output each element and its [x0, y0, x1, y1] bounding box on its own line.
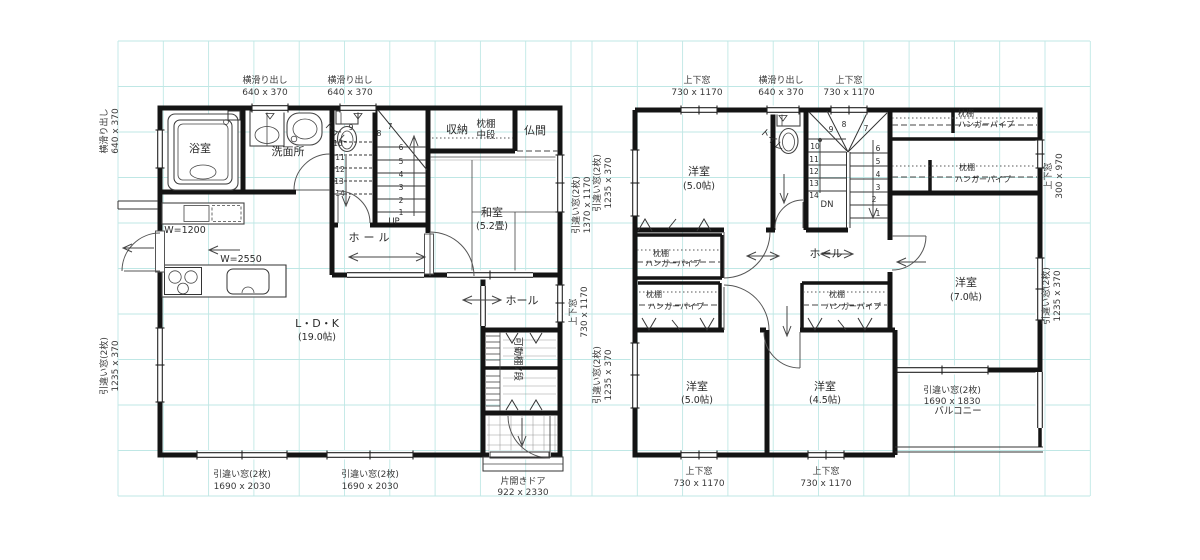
floor1-back-step: [118, 201, 158, 209]
stair-num: 9: [349, 123, 354, 132]
winlabel-bottom-bed-sw-size: 730 x 1170: [673, 479, 724, 489]
winlabel-bottom-left-type: 引違い窓(2枚): [213, 468, 271, 480]
counter-kitchen-label: W=2550: [220, 254, 262, 265]
stair-num: 12: [809, 167, 819, 176]
winlabel-bottom-bed-s-type: 上下窓: [812, 465, 839, 477]
floor1-washroom-fixtures: [250, 111, 322, 146]
room-label-washitsu: 和室: [481, 205, 503, 219]
winlabel-bottom-left-size: 1690 x 2030: [214, 482, 271, 492]
winlabel-right-closet-size: 300 x 970: [1055, 153, 1065, 199]
room-label-bed-s: 洋室: [814, 379, 836, 393]
winlabel-top-stairs-size: 730 x 1170: [823, 88, 874, 98]
floorplan-drawing: 1 2 3 4 5 6 7 8 9 10 11 12 13 14 UP: [0, 0, 1200, 560]
winlabel-bottom-bed-s-size: 730 x 1170: [800, 479, 851, 489]
stair-num: 8: [842, 120, 847, 129]
winlabel-right-bed-e-size: 1235 x 370: [1053, 270, 1063, 321]
window-left-ldk: [156, 328, 165, 402]
winlabel-left-bath-type: 横滑り出し: [98, 108, 110, 153]
closet-pipe-label: ハンガーパイプ: [645, 258, 701, 268]
window-balcony: [897, 366, 988, 375]
room-size-bed-sw: (5.0帖): [681, 394, 713, 406]
shoe-shelf-label: 可動棚7段: [512, 337, 524, 382]
storage-shelf-line1: 枕棚: [476, 118, 495, 130]
stair-num: 11: [335, 153, 345, 162]
closet-shelf-label: 枕棚: [959, 162, 975, 172]
winlabel-top-stairs-type: 上下窓: [835, 74, 862, 86]
closet-shelf-label: 枕棚: [958, 108, 974, 118]
room-label-bed-e: 洋室: [955, 275, 977, 289]
winlabel-left-ldk-size: 1235 x 370: [111, 340, 121, 391]
stair-num: 8: [377, 129, 382, 138]
room-label-bed-sw: 洋室: [686, 379, 708, 393]
stair-num: 5: [876, 157, 881, 166]
closet-chevrons: [506, 333, 542, 410]
winlabel-balcony-type: 引違い窓(2枚): [923, 384, 981, 396]
closet-shelf-label: 枕棚: [646, 289, 662, 299]
room-size-bed-nw: (5.0帖): [683, 180, 715, 192]
room-label-butsuma: 仏間: [524, 124, 546, 137]
closet-pipe-label: ハンガーパイプ: [955, 174, 1011, 184]
floor2-stairs: 9 10 11 12 13 14 8 7 6 5 4 3 2 1 DN: [808, 111, 888, 228]
winlabel-right-hall-type: 上下窓: [567, 298, 579, 325]
closet-pipe-label: ハンガーパイプ: [958, 119, 1014, 129]
stair-num: 2: [872, 195, 877, 204]
closet-shelf-label: 枕棚: [829, 289, 845, 299]
winlabel-bottom-right-size: 1690 x 2030: [342, 482, 399, 492]
winlabel-right-hall-size: 730 x 1170: [580, 286, 590, 337]
room-label-hall-upper: ホール: [349, 231, 394, 244]
winlabel-top-wash-type: 横滑り出し: [242, 74, 287, 86]
closet-shelf-label: 枕棚: [653, 248, 669, 258]
entrance-door-size: 922 x 2330: [497, 488, 548, 498]
stair-num: 13: [334, 177, 344, 186]
window-top-stairs: [831, 106, 867, 115]
stair-num: 1: [399, 208, 404, 217]
window-top-bed-nw: [681, 106, 717, 115]
stair-num: 10: [810, 142, 820, 151]
stair-num: 11: [809, 155, 819, 164]
stair-num: 6: [876, 144, 881, 153]
closet-pipe-label: ハンガーパイプ: [825, 301, 881, 311]
stair-num: 1: [876, 209, 881, 218]
window-bottom-ldk-right: [327, 451, 413, 460]
window-left-bed-nw: [631, 150, 640, 216]
room-size-bed-s: (4.5帖): [809, 394, 841, 406]
stair-num: 13: [809, 179, 819, 188]
winlabel-left-bed-sw-type: 引違い窓(2枚): [591, 346, 603, 404]
stair-num: 14: [809, 191, 819, 200]
stair-num: 3: [399, 183, 404, 192]
room-label-storage: 収納: [446, 123, 468, 136]
winlabel-top-toilet2-size: 640 x 370: [758, 88, 804, 98]
window-left-bath: [156, 130, 165, 168]
winlabel-top-bed-nw-size: 730 x 1170: [671, 88, 722, 98]
floor1-plan: 1 2 3 4 5 6 7 8 9 10 11 12 13 14 UP: [98, 74, 593, 498]
window-bottom-bed-sw: [681, 451, 717, 460]
window-bottom-bed-s: [808, 451, 844, 460]
window-right-washitsu: [556, 155, 565, 212]
winlabel-right-bed-e-type: 引違い窓(2枚): [1040, 267, 1052, 325]
winlabel-right-closet-type: 上下窓: [1042, 162, 1054, 189]
floorplan-canvas: 1 2 3 4 5 6 7 8 9 10 11 12 13 14 UP: [0, 0, 1200, 560]
window-left-bed-sw: [631, 343, 640, 408]
room-label-hall2: ホール: [810, 247, 843, 260]
stair-num: 2: [399, 196, 404, 205]
winlabel-balcony-size: 1690 x 1830: [924, 397, 981, 407]
closet-pipe-label: ハンガーパイプ: [648, 301, 704, 311]
winlabel-top-toilet-type: 横滑り出し: [327, 74, 372, 86]
storage-shelf-line2: 中段: [476, 129, 496, 141]
winlabel-left-ldk-type: 引違い窓(2枚): [98, 337, 110, 395]
room-size-washitsu: (5.2畳): [476, 221, 508, 232]
stair-num: 4: [399, 170, 404, 179]
stair-num: 3: [876, 183, 881, 192]
stair-num: 6: [399, 143, 404, 152]
room-size-ldk: (19.0帖): [298, 331, 336, 343]
winlabel-bottom-right-type: 引違い窓(2枚): [341, 468, 399, 480]
counter-sink-label: W=1200: [164, 225, 206, 236]
winlabel-bottom-bed-sw-type: 上下窓: [685, 465, 712, 477]
stairs-dn-label: DN: [821, 200, 834, 210]
stair-num: 7: [864, 124, 869, 133]
room-label-bath: 浴室: [189, 141, 211, 155]
stair-num: 5: [399, 157, 404, 166]
room-label-wash: 洗面所: [272, 145, 305, 158]
room-label-ldk: L・D・K: [295, 317, 340, 330]
room-size-bed-e: (7.0帖): [950, 291, 982, 303]
floor2-plan: 9 10 11 12 13 14 8 7 6 5 4 3 2 1 DN: [591, 74, 1065, 489]
stair-num: 14: [335, 189, 345, 198]
winlabel-top-toilet-size: 640 x 370: [327, 88, 373, 98]
winlabel-left-bed-nw-size: 1235 x 370: [604, 157, 614, 208]
stair-num: 12: [335, 165, 345, 174]
window-bottom-ldk-left: [197, 451, 287, 460]
stair-num: 4: [876, 170, 881, 179]
room-label-hall-lower: ホール: [506, 294, 539, 307]
window-right-hall: [556, 285, 565, 322]
winlabel-right-washitsu-type: 引違い窓(2枚): [570, 176, 582, 234]
room-label-bed-nw: 洋室: [688, 164, 710, 178]
stair-num: 7: [388, 122, 393, 131]
entrance-door-label: 片開きドア: [500, 475, 545, 487]
stairs-up-label: UP: [388, 217, 399, 227]
winlabel-top-wash-size: 640 x 370: [242, 88, 288, 98]
winlabel-left-bed-nw-type: 引違い窓(2枚): [591, 154, 603, 212]
winlabel-left-bed-sw-size: 1235 x 370: [604, 349, 614, 400]
room-label-balcony: バルコニー: [934, 406, 981, 417]
winlabel-right-washitsu-size: 1370 x 1170: [583, 176, 593, 233]
winlabel-top-toilet2-type: 横滑り出し: [758, 74, 803, 86]
winlabel-top-bed-nw-type: 上下窓: [683, 74, 710, 86]
stair-num: 9: [829, 125, 834, 134]
winlabel-left-bath-size: 640 x 370: [111, 108, 121, 154]
